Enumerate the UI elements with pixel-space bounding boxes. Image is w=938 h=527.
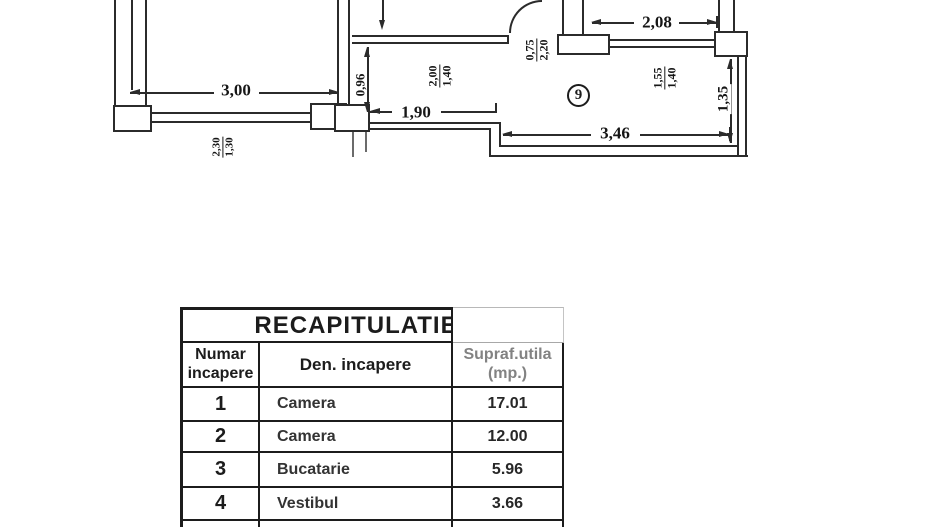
- dimension-label-3-00: 3,00: [219, 82, 253, 99]
- wall-segment: [737, 55, 739, 157]
- dimension-arrow: [130, 89, 140, 95]
- room-name: Vestibul: [260, 488, 453, 521]
- wall-segment: [145, 0, 147, 106]
- room-number-badge: 9: [567, 84, 590, 107]
- dimension-arrow: [719, 131, 729, 137]
- col-header-suprafata-utila: Supraf.utila (mp.): [453, 343, 564, 388]
- wall-segment: [499, 122, 501, 147]
- room-area: 5.96: [453, 453, 564, 488]
- wall-pier: [557, 34, 610, 55]
- wall-segment: [368, 122, 500, 124]
- recap-table: RECAPITULATIE Numar incapere Den. incape…: [180, 307, 564, 527]
- wall-segment: [562, 0, 564, 35]
- dimension-line: [441, 111, 496, 113]
- wall-segment: [608, 46, 716, 48]
- partial-row-cell: [453, 521, 564, 527]
- room-name: Bucatarie: [260, 453, 453, 488]
- wall-pier: [113, 105, 152, 132]
- wall-stub: [352, 132, 354, 157]
- dimension-arrow: [329, 89, 339, 95]
- dimension-arrow: [379, 20, 385, 30]
- table-title: RECAPITULATIE: [180, 307, 453, 343]
- dimension-arrow: [727, 59, 733, 69]
- wall-pier: [714, 31, 748, 57]
- dimension-arrow: [370, 108, 380, 114]
- wall-segment: [131, 0, 133, 90]
- wall-segment: [352, 35, 509, 37]
- dimension-fraction-2-00-1-40: 2,00 1,40: [426, 65, 453, 88]
- dimension-fraction-0-75-2-20: 0,75 2,20: [523, 39, 550, 62]
- scanned-document-page: 3,00 2,30 1,30 0,96 2,00 1,40 1,90 0,75 …: [0, 0, 938, 527]
- wall-segment: [507, 35, 509, 44]
- dimension-line: [130, 92, 214, 94]
- dimension-arrow: [591, 19, 601, 25]
- dimension-line: [382, 0, 384, 22]
- wall-segment: [745, 55, 747, 157]
- dimension-arrow: [502, 131, 512, 137]
- dimension-arrow: [364, 47, 370, 57]
- dimension-fraction-2-30-1-30: 2,30 1,30: [210, 136, 235, 157]
- room-area: 17.01: [453, 388, 564, 422]
- wall-segment: [582, 0, 584, 35]
- room-nr: 1: [180, 388, 260, 422]
- wall-segment: [114, 0, 116, 108]
- dimension-label-2-08: 2,08: [640, 14, 674, 31]
- wall-segment: [489, 128, 491, 157]
- wall-segment: [368, 128, 491, 130]
- wall-segment: [499, 145, 739, 147]
- wall-segment: [733, 0, 735, 33]
- room-nr: 3: [180, 453, 260, 488]
- dimension-label-3-46: 3,46: [598, 125, 632, 142]
- room-nr: 2: [180, 422, 260, 453]
- wall-segment: [348, 0, 350, 106]
- partial-row-cell: [260, 521, 453, 527]
- room-number: 9: [575, 87, 583, 104]
- dimension-line: [640, 134, 728, 136]
- dimension-label-0-96: 0,96: [354, 72, 367, 99]
- dimension-tick: [716, 16, 718, 28]
- wall-segment: [150, 112, 312, 114]
- dimension-tick: [729, 127, 731, 141]
- room-nr: 4: [180, 488, 260, 521]
- col-header-den-incapere: Den. incapere: [260, 343, 453, 388]
- col-header-numar-incapere: Numar incapere: [180, 343, 260, 388]
- door-swing-arc: [509, 0, 542, 33]
- wall-segment: [352, 42, 509, 44]
- room-name: Camera: [260, 422, 453, 453]
- dimension-label-1-35: 1,35: [717, 84, 732, 114]
- dimension-tick: [495, 103, 497, 113]
- dimension-fraction-1-55-1-40: 1,55 1,40: [651, 67, 678, 90]
- dimension-line: [503, 134, 591, 136]
- room-area: 3.66: [453, 488, 564, 521]
- wall-segment: [150, 121, 312, 123]
- wall-segment: [608, 39, 716, 41]
- dimension-label-1-90: 1,90: [399, 104, 433, 121]
- wall-segment: [489, 155, 748, 157]
- wall-stub: [365, 132, 367, 152]
- wall-segment: [718, 0, 720, 33]
- room-name: Camera: [260, 388, 453, 422]
- table-title-ghost-cell: [453, 307, 564, 343]
- dimension-line: [259, 92, 339, 94]
- partial-row-cell: [180, 521, 260, 527]
- room-area: 12.00: [453, 422, 564, 453]
